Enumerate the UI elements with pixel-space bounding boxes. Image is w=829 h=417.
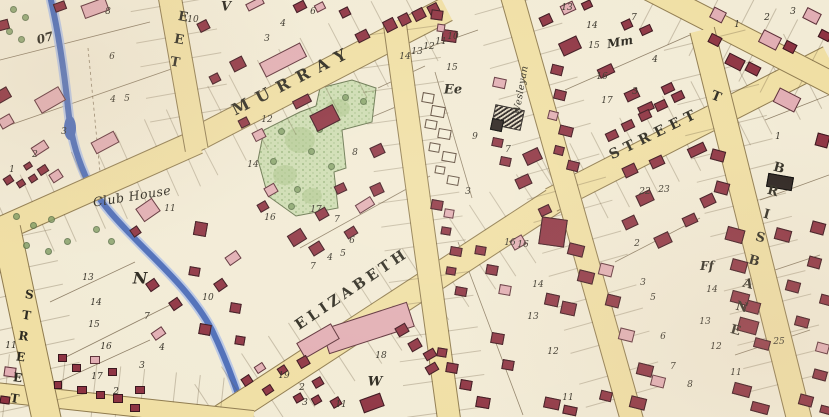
lot-number: 13	[527, 312, 538, 322]
tree-symbol	[48, 216, 55, 223]
building	[440, 226, 451, 236]
lot-number: 11	[335, 400, 346, 410]
building	[490, 118, 504, 132]
lot-number: 6	[349, 236, 355, 246]
lot-number: 3	[640, 278, 646, 288]
building	[436, 347, 447, 358]
historic-atlas-map[interactable]: 8645321103461413121110159312141687174567…	[0, 0, 829, 417]
building	[54, 381, 62, 389]
building	[446, 175, 459, 186]
tree-symbol	[294, 186, 301, 193]
building	[490, 331, 505, 344]
map-annotation: Ff	[700, 259, 714, 273]
building	[436, 23, 445, 32]
lot-number: 3	[790, 7, 796, 17]
building	[498, 284, 512, 296]
building	[434, 165, 445, 175]
lot-number: 6	[310, 7, 316, 17]
lot-number: 1	[734, 20, 740, 30]
lot-number: 14	[399, 52, 410, 62]
lot-number: 5	[650, 293, 656, 303]
lot-number: 14	[532, 280, 543, 290]
map-annotation: V	[221, 0, 231, 15]
lot-number: 11	[562, 393, 573, 403]
lot-number: 13	[82, 273, 93, 283]
lot-number: 2	[299, 383, 305, 393]
tree-symbol	[328, 163, 335, 170]
lot-number: 8	[352, 148, 358, 158]
lot-number: 4	[280, 19, 286, 29]
building	[198, 323, 212, 336]
map-annotation: Ee	[444, 83, 462, 98]
building	[72, 364, 81, 372]
lot-number: 16	[264, 213, 275, 223]
lot-number: 5	[340, 249, 346, 259]
lot-number: 18	[375, 351, 386, 361]
building	[544, 293, 560, 308]
building	[430, 104, 446, 117]
lot-number: 6	[109, 52, 115, 62]
lot-number: 12	[710, 342, 721, 352]
tree-symbol	[93, 226, 100, 233]
lot-number: 16	[517, 240, 528, 250]
building	[90, 356, 100, 364]
building	[474, 245, 486, 256]
lot-number: 14	[247, 160, 258, 170]
lot-number: 6	[660, 332, 666, 342]
building	[491, 136, 504, 147]
building	[454, 286, 467, 297]
lot-number: 17	[601, 96, 612, 106]
lot-number: 9	[472, 132, 478, 142]
lot-number: 14	[706, 285, 717, 295]
lot-number: 4	[110, 95, 116, 105]
building	[814, 132, 829, 148]
building	[135, 386, 145, 394]
lot-number: 1	[775, 132, 781, 142]
building	[553, 144, 565, 155]
lot-number: 3	[61, 127, 67, 137]
building	[424, 119, 437, 130]
building	[192, 221, 207, 237]
tree-symbol	[308, 148, 315, 155]
lot-number: 8	[687, 380, 693, 390]
lot-number: 12	[547, 347, 558, 357]
building	[485, 264, 499, 276]
lot-number: 19	[278, 371, 289, 381]
lot-number: 10	[187, 15, 198, 25]
lot-number: 7	[144, 312, 150, 322]
building	[459, 379, 473, 391]
tree-symbol	[23, 242, 30, 249]
lot-number: 2	[113, 387, 119, 397]
map-annotation: W	[368, 375, 383, 390]
lot-number: 11	[730, 368, 741, 378]
building	[430, 199, 444, 211]
lot-number: 10	[447, 32, 458, 42]
tree-symbol	[10, 6, 17, 13]
building	[437, 128, 452, 140]
tree-symbol	[64, 238, 71, 245]
lot-number: 3	[465, 187, 471, 197]
building	[501, 359, 515, 371]
lot-number: 23	[658, 185, 669, 195]
lot-number: 7	[334, 215, 340, 225]
lot-number: 16	[504, 238, 515, 248]
lot-number: 7	[670, 362, 676, 372]
lot-number: 3	[302, 398, 308, 408]
lot-number: 11	[164, 204, 175, 214]
lot-number: 4	[327, 253, 333, 263]
building	[234, 335, 245, 346]
lot-number: 16	[596, 72, 607, 82]
lot-number: 2	[634, 239, 640, 249]
map-annotation: N	[133, 269, 148, 288]
building	[445, 362, 459, 374]
tree-symbol	[278, 128, 285, 135]
building	[428, 142, 440, 153]
lot-number: 2	[32, 150, 38, 160]
lot-number: 13	[411, 47, 422, 57]
lot-number: 8	[105, 7, 111, 17]
lot-number: 12	[261, 115, 272, 125]
lot-number: 14	[586, 21, 597, 31]
tree-symbol	[30, 222, 37, 229]
lot-number: 5	[124, 94, 130, 104]
tree-symbol	[13, 213, 20, 220]
lot-number: 14	[90, 298, 101, 308]
lot-number: 4	[159, 343, 165, 353]
building	[445, 266, 456, 276]
lot-number: 15	[588, 41, 599, 51]
lot-number: 4	[652, 55, 658, 65]
lot-number: 2	[764, 13, 770, 23]
building	[229, 302, 242, 314]
lot-number: 17	[310, 205, 321, 215]
lot-number: 17	[91, 372, 102, 382]
lot-number: 25	[773, 337, 784, 347]
tree-symbol	[108, 238, 115, 245]
building	[188, 266, 200, 277]
lot-number: 22	[639, 187, 650, 197]
building	[130, 404, 140, 412]
lot-number: 15	[88, 320, 99, 330]
lot-number: 11	[435, 37, 446, 47]
lot-number: 7	[310, 262, 316, 272]
building	[96, 391, 105, 399]
lot-number: 1	[9, 165, 15, 175]
building	[443, 208, 454, 219]
tree-symbol	[288, 203, 295, 210]
tree-symbol	[342, 94, 349, 101]
lot-number: 3	[264, 34, 270, 44]
tree-symbol	[45, 248, 52, 255]
building	[499, 155, 512, 166]
lot-number: 12	[423, 42, 434, 52]
building	[430, 9, 443, 21]
lot-number: 7	[631, 13, 637, 23]
building	[449, 246, 462, 257]
lot-number: 7	[505, 145, 511, 155]
building	[77, 386, 87, 394]
lot-number: 10	[202, 293, 213, 303]
lot-number: 3	[632, 87, 638, 97]
building	[58, 354, 67, 362]
lot-number: 11	[5, 341, 16, 351]
building	[421, 92, 435, 104]
lot-number: 3	[139, 361, 145, 371]
building	[475, 395, 491, 408]
lot-number: 13	[699, 317, 710, 327]
tree-symbol	[18, 36, 25, 43]
lot-number: 16	[100, 342, 111, 352]
building	[547, 109, 559, 120]
building	[559, 300, 576, 316]
tree-symbol	[22, 14, 29, 21]
tree-symbol	[270, 158, 277, 165]
tree-symbol	[360, 98, 367, 105]
lot-number: 15	[446, 63, 457, 73]
building	[108, 368, 117, 376]
building	[538, 216, 568, 247]
lot-number: 13	[561, 3, 572, 13]
